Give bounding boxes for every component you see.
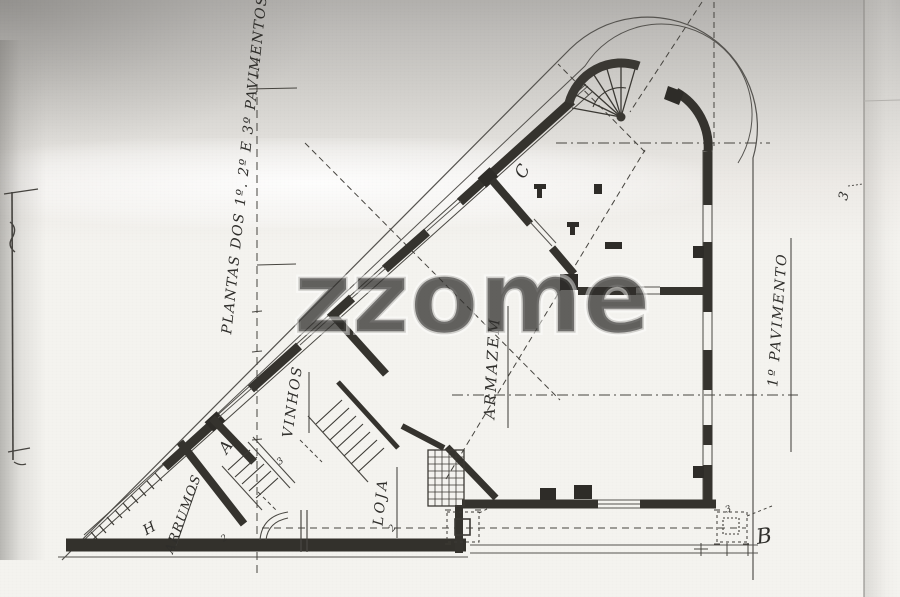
scanned-floor-plan: PLANTAS DOS 1º. 2º E 3º PAVIMENTOS 1º PA…	[0, 0, 900, 597]
mark-three-a: 3	[275, 456, 286, 468]
door-letter-c: C	[511, 161, 535, 182]
floor-label: 1º PAVIMENTO	[765, 252, 790, 388]
left-margin-marks	[4, 189, 38, 465]
room-label-vinhos: VINHOS	[280, 364, 306, 439]
margin-note-three: 3	[836, 190, 853, 202]
floor-plan-drawing: PLANTAS DOS 1º. 2º E 3º PAVIMENTOS 1º PA…	[0, 0, 900, 597]
plan-title: PLANTAS DOS 1º. 2º E 3º PAVIMENTOS	[219, 0, 271, 336]
margin-note-dashes	[848, 184, 863, 186]
door-letter-b: B	[754, 523, 774, 549]
svg-text:zzome: zzome	[293, 239, 650, 356]
door-letter-h: H	[139, 518, 159, 539]
right-wall	[664, 86, 712, 506]
mark-three-b: 3	[724, 504, 733, 515]
margin-tick	[864, 100, 900, 101]
watermark: zzome zzome	[293, 239, 650, 356]
room-label-loja: LOJA	[370, 477, 391, 528]
detail-square-b	[714, 510, 749, 544]
